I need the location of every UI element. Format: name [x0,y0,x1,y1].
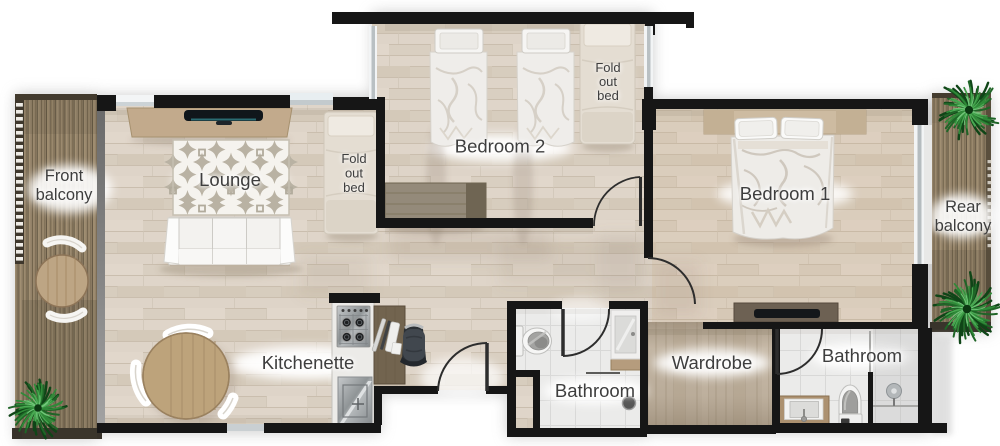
svg-text:bed: bed [343,180,365,195]
svg-text:Bathroom: Bathroom [822,345,902,366]
svg-text:Fold: Fold [341,151,366,166]
svg-text:balcony: balcony [935,217,993,235]
svg-text:bed: bed [597,88,619,103]
svg-text:Kitchenette: Kitchenette [262,352,355,373]
svg-text:Fold: Fold [595,60,620,75]
svg-text:out: out [345,166,363,181]
svg-text:Bedroom 1: Bedroom 1 [740,183,831,204]
svg-text:Bedroom 2: Bedroom 2 [455,136,546,157]
svg-text:Rear: Rear [945,198,981,216]
svg-text:Bathroom: Bathroom [555,380,635,401]
svg-text:out: out [599,74,617,89]
svg-text:balcony: balcony [36,186,94,204]
svg-text:Lounge: Lounge [199,169,261,190]
svg-text:Front: Front [45,167,84,185]
svg-text:Wardrobe: Wardrobe [672,352,753,373]
